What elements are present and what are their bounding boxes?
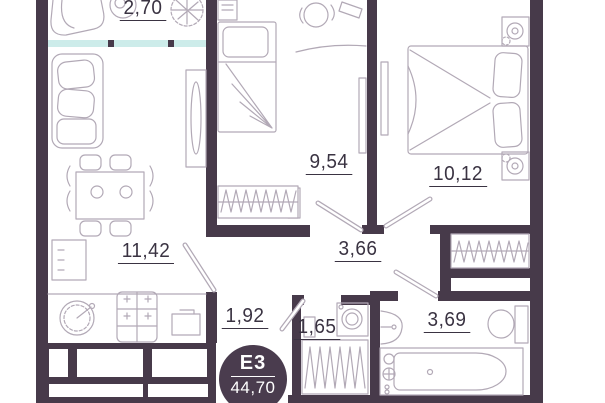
room-area-label-bedroom-small: 9,54	[306, 152, 352, 175]
plate	[91, 186, 103, 198]
tv-cabinet	[186, 70, 206, 167]
window-opening	[49, 384, 143, 397]
toilet	[488, 306, 528, 343]
wall-segment	[440, 234, 451, 301]
bedroom-master-furniture	[381, 17, 529, 180]
desk	[296, 2, 366, 52]
fridge	[52, 240, 86, 280]
room-area-label-bathroom: 3,69	[424, 310, 470, 333]
bedroom-small-door	[318, 203, 361, 230]
wall-segment	[530, 0, 543, 403]
living-room-furniture	[48, 54, 206, 342]
tv	[381, 62, 388, 135]
headboard-shelf	[218, 0, 237, 20]
dining-table	[76, 172, 144, 219]
kitchen-appliance	[172, 310, 200, 335]
washing-machine	[337, 303, 368, 336]
hallway-closet	[451, 234, 529, 268]
window-opening	[152, 349, 207, 377]
room-area-label-laundry-wc: 1,65	[294, 317, 340, 340]
wall-segment	[430, 225, 543, 234]
window-opening	[49, 349, 68, 377]
window-opening	[77, 349, 143, 377]
room-area-label-balcony: 2,70	[120, 0, 166, 21]
wall-segment	[206, 225, 310, 237]
room-area-label-kitchen-living: 11,42	[118, 241, 174, 264]
balcony-window	[48, 40, 206, 47]
window-opening	[148, 384, 208, 397]
living-room-door	[185, 245, 214, 290]
wall-segment	[206, 0, 217, 237]
sofa	[52, 54, 103, 148]
bathroom-door	[396, 272, 436, 296]
tv	[359, 78, 366, 153]
pillow	[492, 102, 522, 148]
pillow	[223, 27, 268, 57]
chair	[80, 155, 101, 170]
badge-divider	[231, 376, 275, 377]
wall-segment	[367, 0, 377, 234]
wall-segment	[438, 291, 530, 301]
room-area-label-hallway: 3,66	[335, 239, 381, 262]
stove	[117, 292, 157, 342]
desk-chair	[304, 3, 328, 27]
single-bed	[218, 22, 276, 132]
nightstand	[502, 152, 529, 180]
plate	[120, 186, 132, 198]
chair	[110, 155, 131, 170]
apartment-badge: E3 44,70	[219, 345, 287, 403]
apartment-type-label: E3	[219, 352, 287, 374]
bedroom-master-door	[386, 199, 430, 226]
lounge-chair	[51, 0, 104, 35]
double-bed	[408, 46, 528, 154]
dining-set	[67, 155, 153, 236]
wardrobe	[218, 186, 298, 218]
bathtub	[380, 348, 523, 395]
chair	[80, 221, 101, 236]
kitchen-sink	[60, 301, 95, 335]
chair	[110, 221, 131, 236]
plant	[171, 0, 203, 26]
wall-segment	[206, 292, 217, 343]
nightstand	[502, 17, 529, 46]
linen-closet	[302, 340, 368, 394]
wall-segment	[370, 301, 380, 403]
total-area-value: 44,70	[219, 379, 287, 398]
wall-segment	[36, 0, 48, 343]
floor-plan: 2,70 9,54 10,12 11,42 3,66 1,92 1,65 3,6…	[0, 0, 605, 403]
floor-plan-drawing	[0, 0, 605, 403]
room-area-label-bedroom-master: 10,12	[429, 164, 487, 187]
bedroom-small-furniture	[218, 0, 366, 218]
sink	[381, 311, 402, 344]
wall-segment	[288, 395, 543, 403]
wall-segment	[451, 268, 530, 278]
room-area-label-corridor: 1,92	[222, 306, 268, 329]
pillow	[492, 52, 522, 98]
wall-segment	[362, 225, 384, 234]
